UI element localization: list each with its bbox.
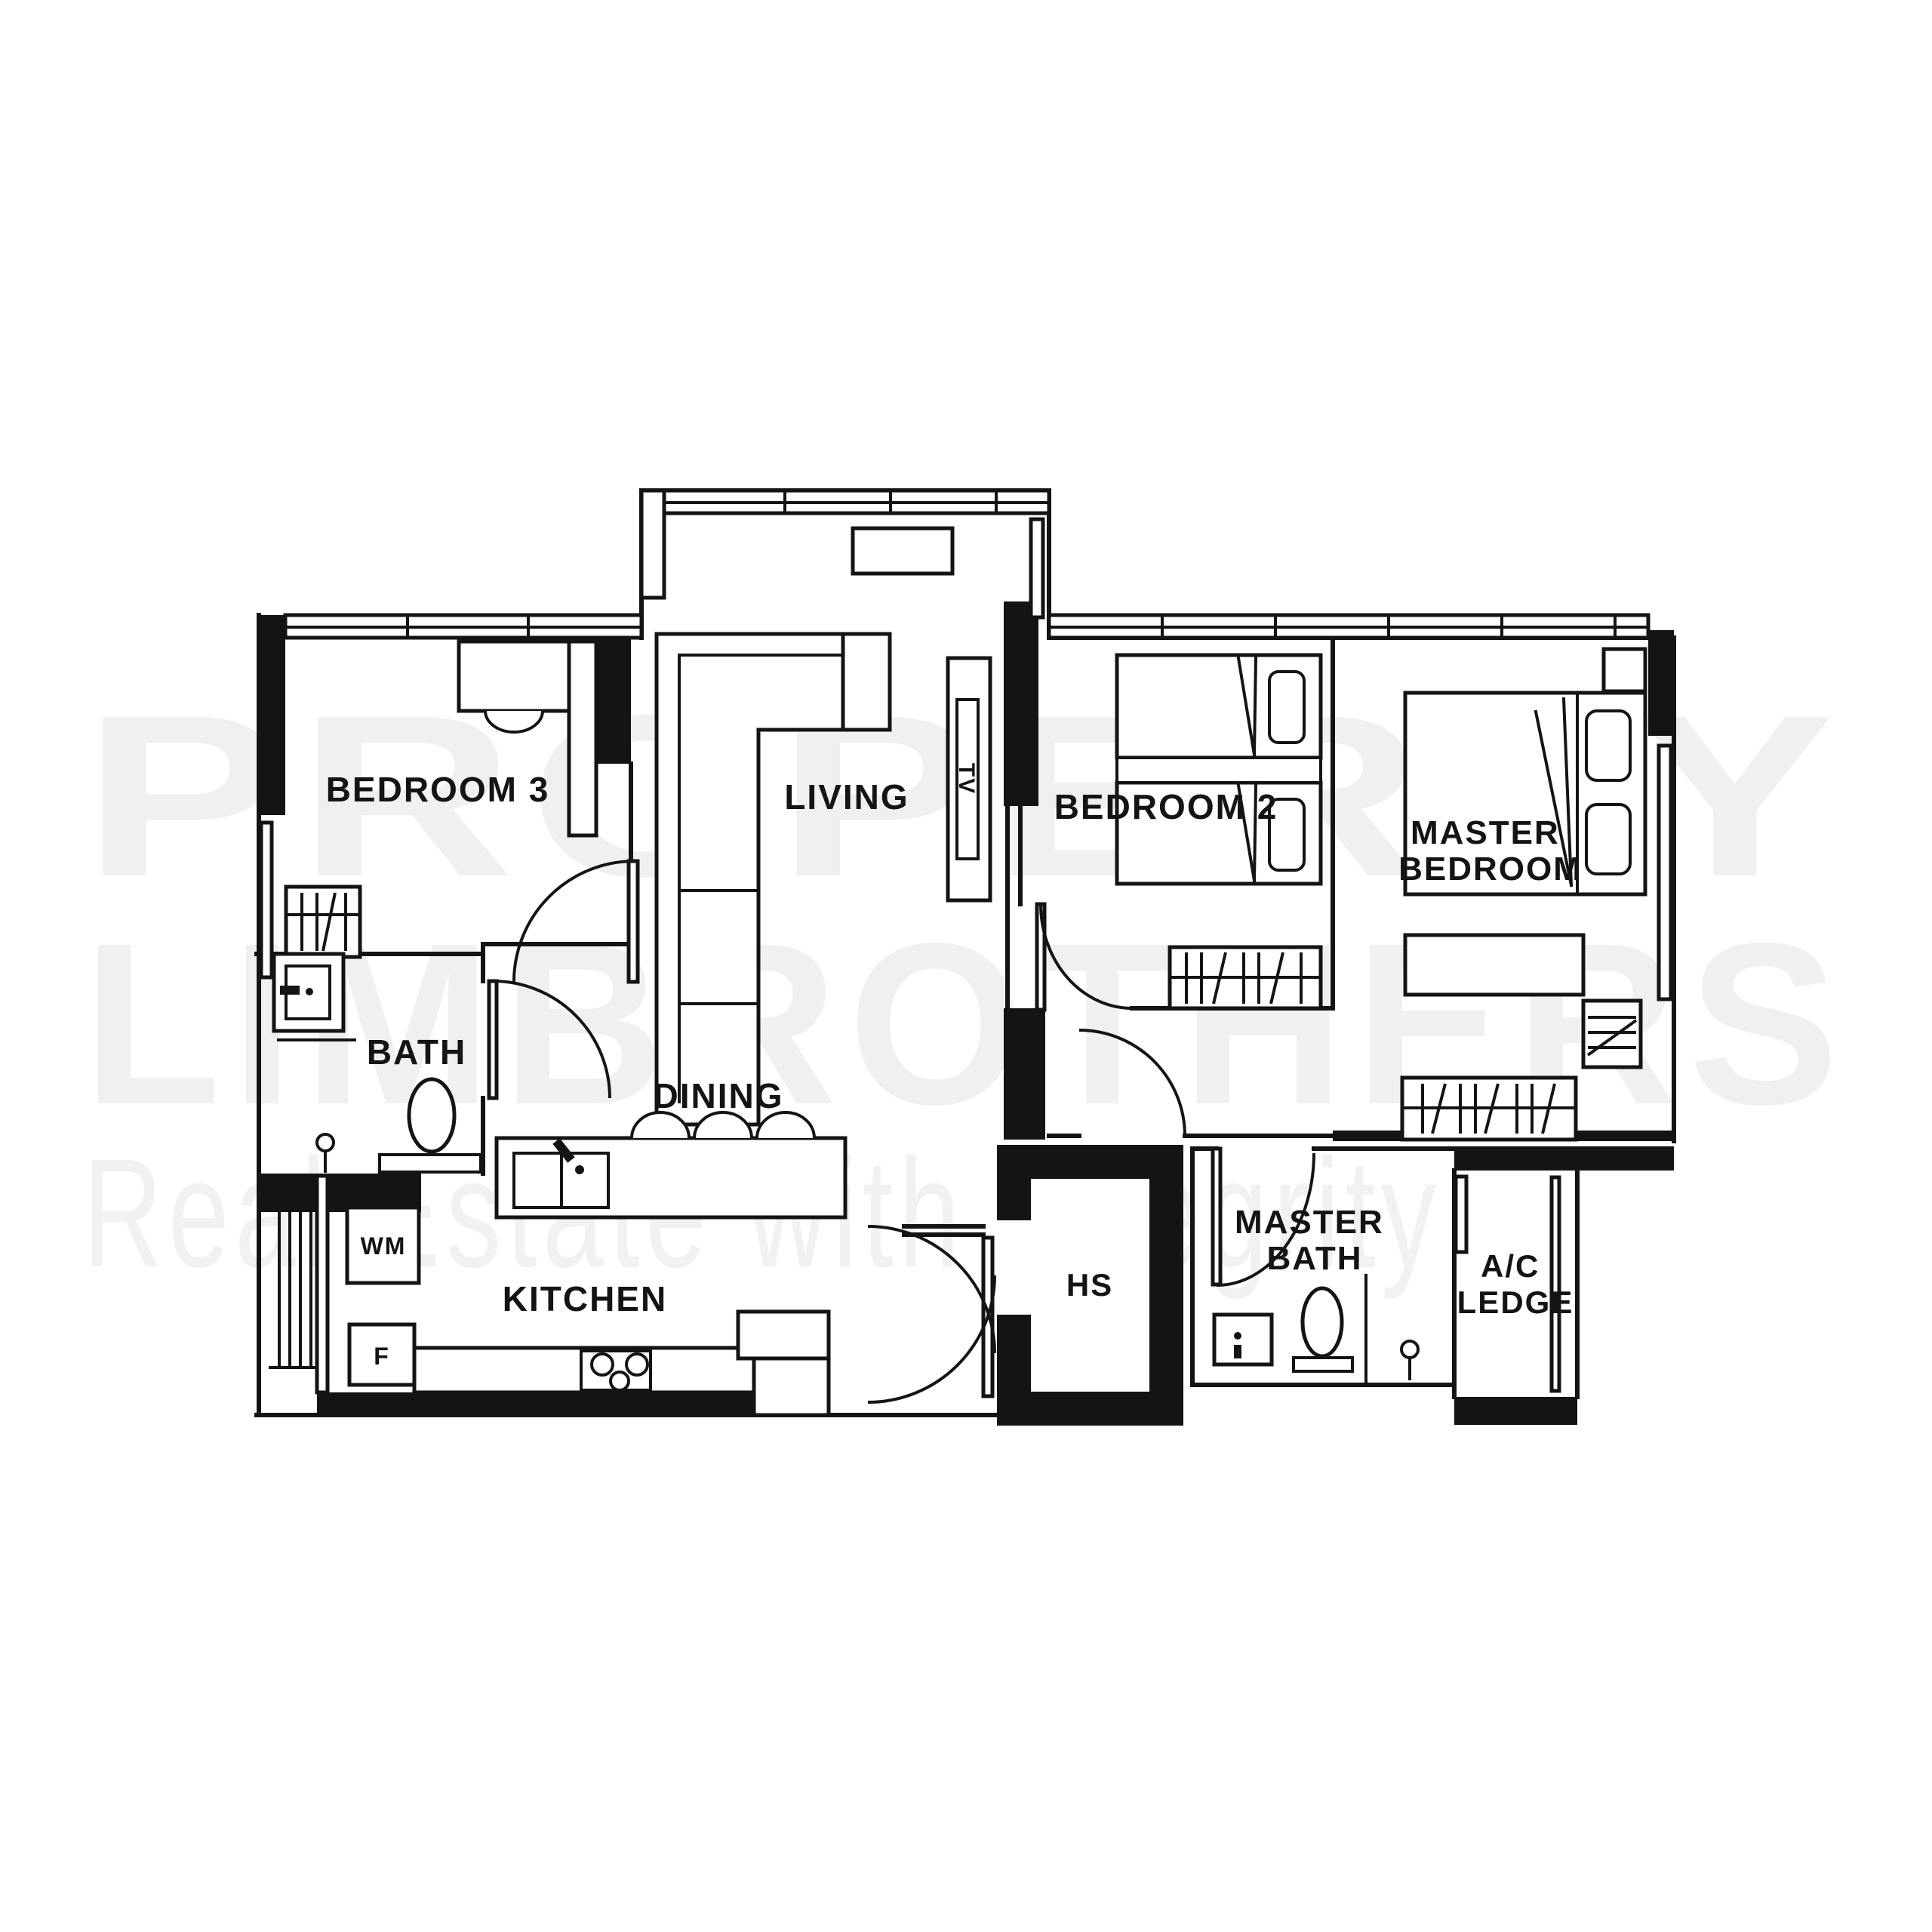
window-master-right [1659,746,1671,999]
ac-ledge-bottom-wall [1454,1397,1577,1425]
shower-head-bath [317,1134,334,1151]
toilet-base-master-bath [1294,1358,1352,1371]
label-master-bedroom: MASTER BEDROOM [1398,814,1583,888]
wall-dining-hall [1004,1008,1045,1140]
window-living-right [1031,519,1043,617]
toilet-bath [409,1079,454,1152]
shower-head-master-bath [1401,1341,1418,1358]
sink-master-bath [1214,1315,1272,1364]
label-bedroom3: BEDROOM 3 [326,770,550,809]
toilet-master-bath [1303,1288,1342,1356]
window-bedroom3-left [261,823,272,977]
wall-kitchen-bottom [317,1392,808,1415]
window-living-corner [641,491,664,598]
window-ac-ledge-left [1456,1177,1466,1252]
kitchen-counter-return [738,1312,829,1358]
pillow-master-2 [1586,804,1630,874]
tap-dot-bath [306,988,313,995]
bar-chairs [632,1112,814,1138]
door-leaf-master-bath [1213,1149,1220,1284]
hs-door-opening [997,1220,1031,1315]
wall-top-right-corner [1648,630,1674,736]
wall-bedroom3-living [593,638,631,764]
pillow-master-1 [1586,711,1630,780]
kitchen-cabinet-right [754,1358,829,1415]
island-tap-dot [575,1165,584,1174]
tap-dot-master-bath [1234,1332,1241,1340]
shoe-cabinet [853,528,952,574]
label-fridge: F [374,1343,390,1370]
label-dining: DINING [654,1076,784,1115]
pillow-bed1 [1269,672,1304,743]
sofa-armrest [843,634,890,730]
ac-ledge-top-wall [1454,1146,1674,1171]
desk-return [569,641,596,835]
label-wm: WM [361,1232,407,1260]
floor-plan-canvas: PROPERTY LIMBROTHERS Real Estate with In… [0,0,1932,1932]
nightstand-master [1604,649,1645,691]
tv-label: TV [954,763,979,795]
label-bath: BATH [367,1032,466,1072]
dresser-master [1405,935,1583,995]
door-leaf-bedroom3 [629,861,638,982]
window-service-yard [317,1176,328,1392]
desk [459,641,569,711]
wall-living-bedroom2 [1004,601,1038,806]
label-kitchen: KITCHEN [503,1279,667,1318]
label-bedroom2: BEDROOM 2 [1054,787,1278,826]
label-living: LIVING [784,777,909,817]
door-leaf-bath [489,981,497,1098]
floor-plan-page: PROPERTY LIMBROTHERS Real Estate with In… [0,0,1932,1932]
toilet-base-bath [380,1155,481,1172]
label-hs: HS [1066,1267,1113,1303]
nightstand-bedroom2 [1117,758,1321,783]
